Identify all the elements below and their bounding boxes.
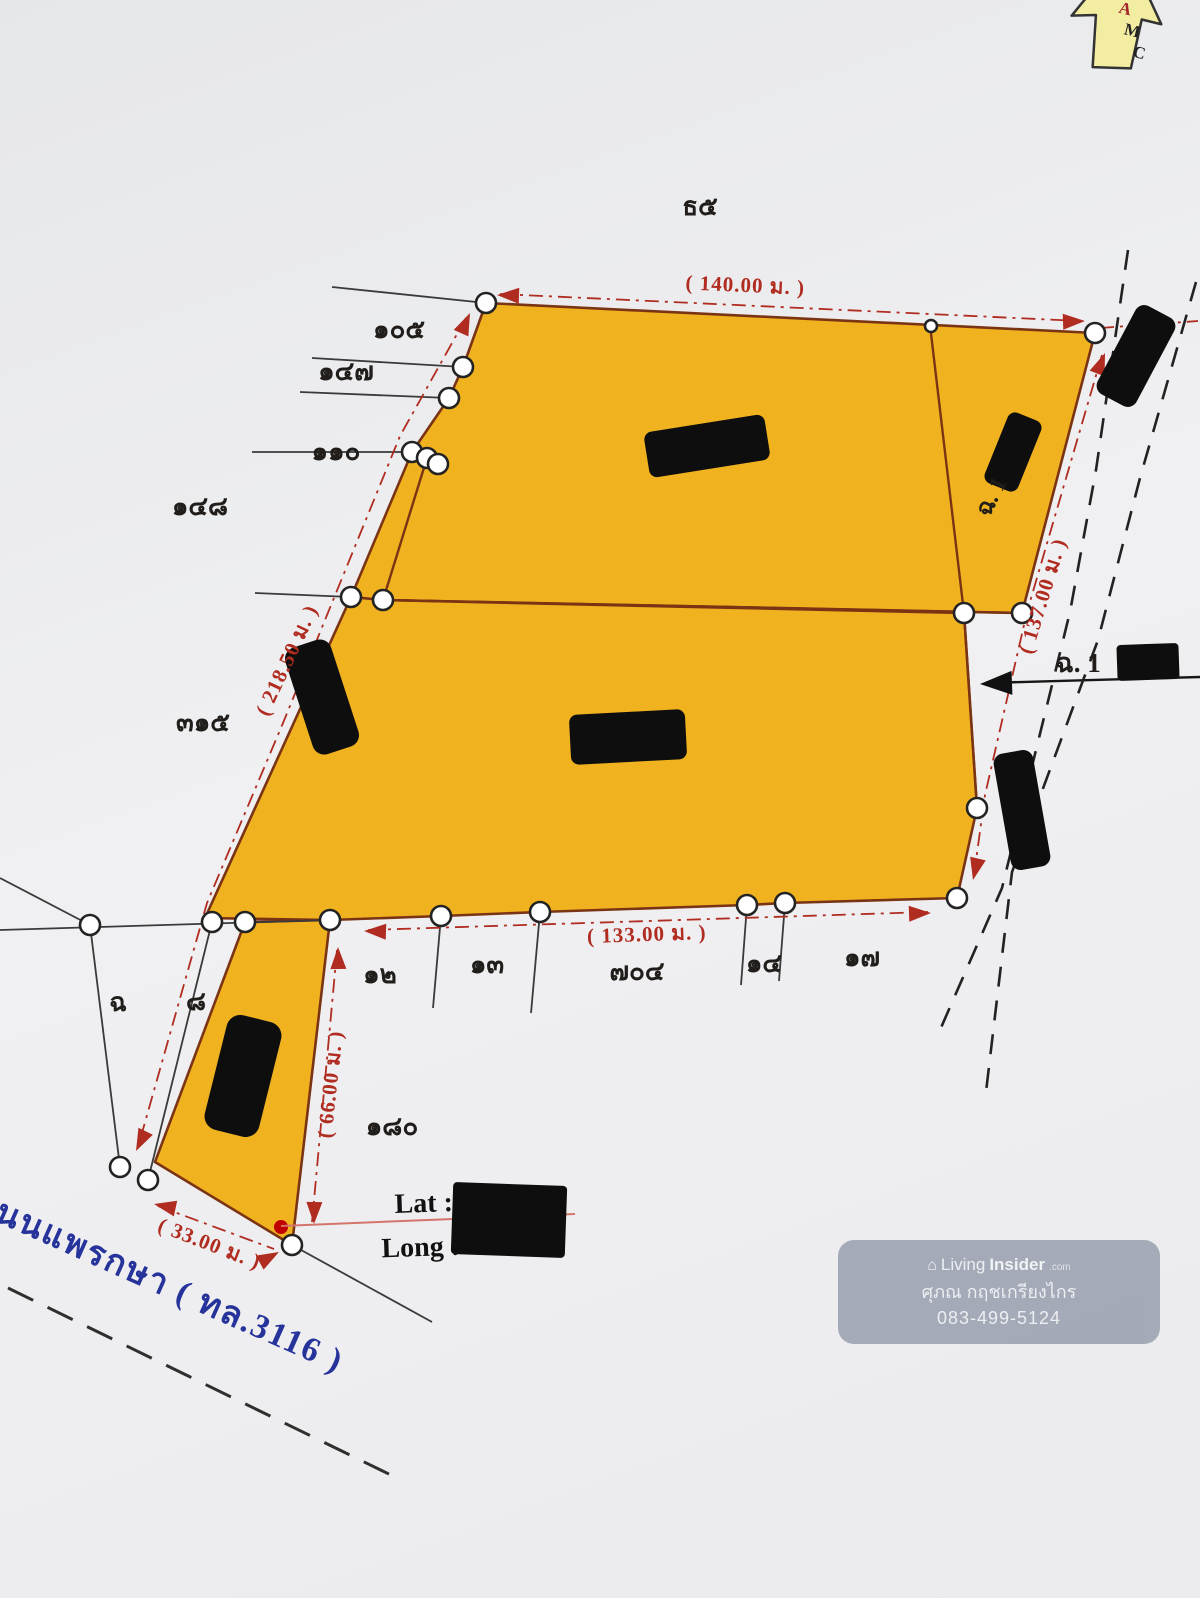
vertex-704: ๗๐๔ — [609, 957, 664, 986]
survey-marker — [439, 388, 459, 408]
survey-marker — [453, 357, 473, 377]
vertex-8: ๘ — [186, 987, 206, 1016]
vertex-105: ๑๐๕ — [373, 315, 425, 344]
survey-marker — [341, 587, 361, 607]
callout-arrowhead — [980, 671, 1013, 696]
redacted-label-outside-right — [1093, 302, 1179, 411]
survey-marker — [476, 293, 496, 313]
redacted-deed-number-lower — [569, 709, 687, 765]
arrowhead — [965, 857, 986, 882]
watermark-brand-living: Living — [941, 1255, 985, 1275]
dimension-133m: ( 133.00 ม. ) — [587, 920, 707, 948]
arrowhead — [306, 1202, 322, 1224]
parcel-ref-right: ฉ. 1 — [1055, 648, 1100, 678]
vertex-315: ๓๑๕ — [176, 708, 230, 737]
watermark-livinginsider: ⌂ LivingInsider.com ศุภณ กฤชเกรียงไกร 08… — [838, 1240, 1160, 1344]
amc-letter-m: M — [1122, 20, 1142, 42]
arrowhead — [129, 1128, 153, 1155]
survey-marker — [110, 1157, 130, 1177]
survey-marker — [138, 1170, 158, 1190]
survey-marker — [373, 590, 393, 610]
wedge-left-edge — [90, 925, 120, 1167]
survey-marker — [320, 910, 340, 930]
survey-marker — [947, 888, 967, 908]
vertex-147: ๑๔๗ — [318, 357, 374, 386]
watermark-phone: 083-499-5124 — [937, 1308, 1061, 1329]
long-label: Long : — [381, 1231, 461, 1265]
lat-label: Lat : — [394, 1187, 453, 1220]
watermark-brand: ⌂ LivingInsider.com — [927, 1255, 1071, 1275]
survey-marker — [775, 893, 795, 913]
tick-line — [255, 593, 351, 597]
road-name: ถนนแพรกษา ( ทล.3116 ) — [0, 1184, 349, 1380]
redacted-lat-long-values — [451, 1182, 567, 1258]
left-parcel-line — [0, 878, 90, 925]
survey-marker — [967, 798, 987, 818]
survey-marker — [80, 915, 100, 935]
survey-marker — [954, 603, 974, 623]
scanned-land-survey-page: { "colors": { "parcel_fill": "#F1B220", … — [0, 0, 1200, 1598]
redacted-label-right-wedge — [992, 748, 1052, 871]
arrowhead — [364, 923, 387, 940]
vertex-180: ๑๘๐ — [366, 1112, 418, 1141]
survey-map-canvas: ธ๕๑๐๕๑๔๗๑๑๐๑๔๘๓๑๕ฉ๘๑๒๑๓๗๐๔๑๔๑๗๑๘๐( 140.0… — [0, 0, 1200, 1598]
vertex-148: ๑๔๘ — [172, 492, 228, 521]
tick-line — [300, 392, 449, 398]
tick-line — [332, 287, 486, 303]
dimension-33m: ( 33.00 ม. ) — [155, 1213, 265, 1274]
survey-marker — [925, 320, 937, 332]
arrowhead — [1063, 313, 1086, 330]
vertex-12: ๑๒ — [363, 960, 397, 989]
vertex-17: ๑๗ — [844, 943, 880, 972]
vertex-13: ๑๓ — [470, 950, 504, 979]
house-icon: ⌂ — [927, 1257, 937, 1275]
redacted-parcel-ref-value — [1116, 643, 1179, 681]
arrowhead — [497, 287, 520, 304]
arrowhead — [909, 905, 932, 922]
arrowhead — [330, 947, 346, 969]
dimension-140m: ( 140.00 ม. ) — [685, 270, 806, 299]
watermark-brand-tld: .com — [1049, 1262, 1071, 1273]
survey-marker — [530, 902, 550, 922]
survey-marker — [282, 1235, 302, 1255]
dimension-66m: ( 66.00 ม. ) — [312, 1029, 347, 1139]
survey-marker — [202, 912, 222, 932]
plot-no-top: ธ๕ — [682, 192, 718, 221]
tick-line — [531, 912, 540, 1013]
parcel-polygons — [155, 303, 1095, 1245]
arrowhead — [454, 310, 478, 337]
survey-marker — [428, 454, 448, 474]
vertex-cho: ฉ — [109, 988, 127, 1017]
red-reference-dot — [274, 1220, 288, 1234]
watermark-agent-name: ศุภณ กฤชเกรียงไกร — [922, 1277, 1077, 1306]
tick-line — [433, 916, 441, 1008]
vertex-110: ๑๑๐ — [312, 437, 361, 466]
survey-marker — [1085, 323, 1105, 343]
watermark-brand-insider: Insider — [989, 1255, 1045, 1275]
survey-marker — [235, 912, 255, 932]
vertex-14: ๑๔ — [746, 949, 783, 978]
survey-marker — [737, 895, 757, 915]
survey-marker — [431, 906, 451, 926]
